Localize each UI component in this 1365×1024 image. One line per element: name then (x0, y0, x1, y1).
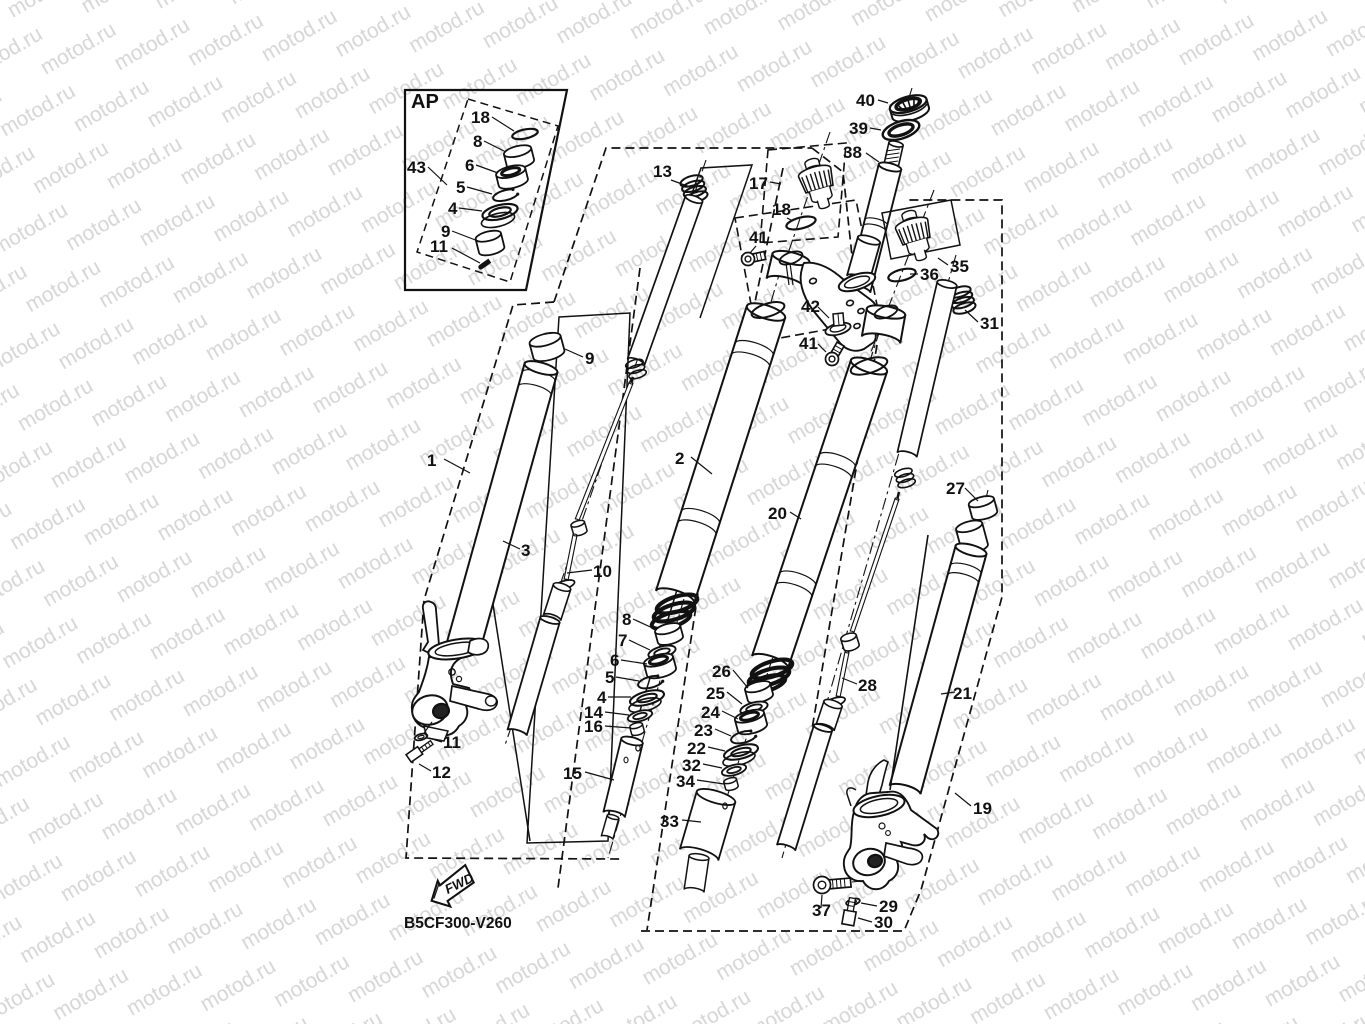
svg-text:8: 8 (622, 610, 631, 629)
svg-text:18: 18 (471, 108, 490, 127)
svg-text:20: 20 (768, 504, 787, 523)
svg-text:25: 25 (706, 684, 725, 703)
svg-text:5: 5 (605, 668, 614, 687)
svg-text:12: 12 (432, 763, 451, 782)
svg-text:21: 21 (953, 684, 972, 703)
svg-text:36: 36 (920, 265, 939, 284)
svg-text:5: 5 (456, 178, 465, 197)
svg-text:11: 11 (430, 237, 448, 256)
svg-text:34: 34 (676, 772, 695, 791)
svg-text:17: 17 (749, 174, 768, 193)
svg-text:3: 3 (521, 541, 530, 560)
svg-text:24: 24 (701, 703, 720, 722)
svg-text:42: 42 (801, 297, 820, 316)
svg-text:31: 31 (980, 314, 999, 333)
svg-text:19: 19 (973, 799, 992, 818)
svg-text:41: 41 (799, 334, 818, 353)
svg-text:30: 30 (874, 913, 893, 932)
svg-text:4: 4 (448, 199, 458, 218)
svg-text:38: 38 (843, 143, 862, 162)
svg-text:B5CF300-V260: B5CF300-V260 (404, 915, 512, 932)
svg-text:28: 28 (858, 676, 877, 695)
svg-text:39: 39 (849, 119, 868, 138)
svg-text:9: 9 (585, 349, 594, 368)
svg-text:16: 16 (584, 717, 603, 736)
svg-text:7: 7 (618, 631, 627, 650)
svg-text:AP: AP (411, 91, 439, 113)
svg-text:18: 18 (772, 200, 791, 219)
svg-text:13: 13 (653, 162, 672, 181)
svg-text:8: 8 (473, 132, 482, 151)
svg-text:6: 6 (465, 156, 474, 175)
svg-text:15: 15 (563, 764, 582, 783)
svg-text:23: 23 (694, 721, 713, 740)
svg-text:41: 41 (749, 228, 768, 247)
svg-text:11: 11 (443, 733, 461, 752)
svg-text:35: 35 (950, 257, 969, 276)
svg-text:26: 26 (712, 662, 731, 681)
svg-text:27: 27 (946, 479, 965, 498)
svg-text:10: 10 (593, 562, 612, 581)
svg-text:43: 43 (407, 158, 426, 177)
svg-text:40: 40 (856, 91, 875, 110)
svg-text:33: 33 (660, 812, 679, 831)
svg-text:2: 2 (675, 449, 684, 468)
svg-text:1: 1 (427, 451, 436, 470)
